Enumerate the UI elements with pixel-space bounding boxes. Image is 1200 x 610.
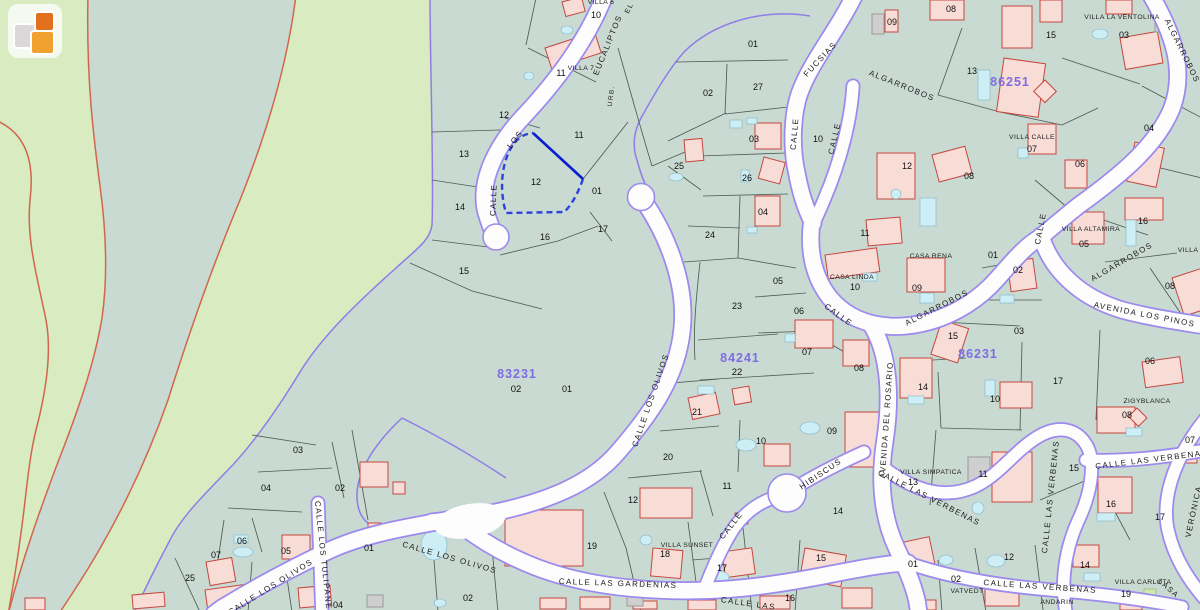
catastro-logo <box>8 4 62 58</box>
parcel-number: 11 <box>860 228 869 238</box>
house-name-label: ANDARIN <box>1040 599 1073 606</box>
parcel-number: 17 <box>717 563 727 573</box>
cul-de-sac-circle <box>628 184 655 211</box>
building <box>684 138 704 161</box>
parcel-number: 16 <box>540 232 550 242</box>
pool <box>561 26 573 34</box>
pool <box>1126 428 1142 436</box>
pool <box>987 555 1005 567</box>
parcel-number: 06 <box>1145 356 1155 366</box>
parcel-number: 12 <box>531 177 541 187</box>
parcel-number: 10 <box>591 10 601 20</box>
block-number: 84241 <box>720 351 760 365</box>
parcel-number: 13 <box>967 66 977 76</box>
parcel-number: 16 <box>785 593 795 603</box>
block-number: 83231 <box>497 367 537 381</box>
pool <box>920 293 934 303</box>
pool <box>939 555 953 565</box>
parcel-number: 18 <box>660 549 670 559</box>
parcel-number: 08 <box>964 171 974 181</box>
logo-orange-square <box>34 11 55 32</box>
map-canvas[interactable]: EUCALIPTOSLOSCALLEURB.ELCALLEFUCSIASCALL… <box>0 0 1200 610</box>
pool <box>640 535 652 545</box>
parcel-number: 15 <box>1069 463 1079 473</box>
parcel-number: 07 <box>1027 144 1037 154</box>
house-name-label: VILLA <box>1178 247 1199 254</box>
parcel-number: 09 <box>827 426 837 436</box>
parcel-number: 08 <box>854 363 864 373</box>
parcel-number: 17 <box>1053 376 1063 386</box>
map-viewport: EUCALIPTOSLOSCALLEURB.ELCALLEFUCSIASCALL… <box>0 0 1200 610</box>
parcel-number: 01 <box>988 250 998 260</box>
parcel-number: 15 <box>816 553 826 563</box>
parcel-number: 14 <box>455 202 465 212</box>
parcel-number: 08 <box>1122 410 1132 420</box>
parcel-number: 23 <box>732 301 742 311</box>
parcel-number: 27 <box>753 82 763 92</box>
pool <box>747 227 757 233</box>
parcel-number: 01 <box>562 384 572 394</box>
parcel-number: 05 <box>773 276 783 286</box>
building <box>1106 0 1132 14</box>
parcel-number: 08 <box>946 4 956 14</box>
pool <box>698 386 714 394</box>
parcel-number: 13 <box>459 149 469 159</box>
pool <box>1084 573 1100 581</box>
building <box>1000 382 1032 408</box>
parcel-number: 04 <box>261 483 271 493</box>
pool <box>1126 220 1136 246</box>
house-name-label: VATVEDT <box>950 588 983 595</box>
building <box>393 482 405 494</box>
parcel-number: 13 <box>908 477 918 487</box>
parcel-number: 10 <box>990 394 1000 404</box>
parcel-number: 02 <box>1013 265 1023 275</box>
parcel-number: 21 <box>692 407 702 417</box>
parcel-number: 09 <box>887 17 897 27</box>
parcel-number: 10 <box>850 282 860 292</box>
cul-de-sac-circle <box>768 474 806 512</box>
cul-de-sac-circle <box>483 224 509 250</box>
gray-building <box>367 595 383 607</box>
gray-building <box>872 14 884 34</box>
pool <box>920 198 936 226</box>
logo-amber-square <box>30 30 55 55</box>
building <box>900 358 932 398</box>
parcel-number: 07 <box>211 550 221 560</box>
parcel-number: 03 <box>293 445 303 455</box>
parcel-number: 06 <box>794 306 804 316</box>
building <box>580 597 610 609</box>
parcel-number: 25 <box>185 573 195 583</box>
pool <box>1097 513 1115 521</box>
parcel-number: 19 <box>1121 589 1131 599</box>
pool <box>800 422 820 434</box>
building <box>206 557 236 585</box>
parcel-number: 11 <box>556 68 565 78</box>
parcel-number: 19 <box>587 541 597 551</box>
building <box>688 600 716 610</box>
pool <box>233 547 253 557</box>
parcel-number: 14 <box>918 382 928 392</box>
building <box>732 386 752 405</box>
parcel-number: 15 <box>948 331 958 341</box>
building <box>764 444 790 466</box>
house-name-label: VILLA SUNSET <box>661 542 713 549</box>
house-name-label: VILLA SIMPATICA <box>900 469 962 476</box>
parcel-number: 02 <box>951 574 961 584</box>
building <box>1040 0 1062 22</box>
parcel-number: 11 <box>722 481 731 491</box>
parcel-number: 05 <box>1079 239 1089 249</box>
parcel-number: 04 <box>758 207 768 217</box>
pool <box>736 439 756 451</box>
parcel-number: 01 <box>748 39 758 49</box>
block-parcel-number: 02 <box>511 384 522 395</box>
parcel-number: 03 <box>1119 30 1129 40</box>
parcel-number: 16 <box>1138 216 1148 226</box>
parcel-number: 12 <box>902 161 912 171</box>
parcel-number: 03 <box>749 134 759 144</box>
house-name-label: VILLA 6 <box>588 0 615 6</box>
parcel-number: 09 <box>912 283 922 293</box>
parcel-number: 14 <box>833 506 843 516</box>
parcel-number: 17 <box>1155 512 1165 522</box>
parcel-number: 10 <box>756 436 766 446</box>
parcel-number: 01 <box>908 559 918 569</box>
street-label: CALLE <box>488 184 498 217</box>
parcel-number: 04 <box>1144 123 1154 133</box>
building <box>132 592 165 609</box>
parcel-number: 01 <box>592 186 602 196</box>
pool <box>1092 29 1108 39</box>
pool <box>1000 295 1014 303</box>
house-name-label: VILLA LA VENTOLINA <box>1084 14 1160 21</box>
house-name-label: VILLA CALLE <box>1009 134 1055 141</box>
parcel-number: 10 <box>813 134 823 144</box>
house-name-label: VILLA CARLOTA <box>1115 579 1172 586</box>
pool <box>978 70 990 100</box>
building <box>842 588 872 608</box>
house-name-label: CASA LINDA <box>830 274 874 281</box>
parcel-number: 05 <box>281 546 291 556</box>
pool <box>524 72 534 80</box>
pool <box>785 334 795 342</box>
parcel-number: 02 <box>335 483 345 493</box>
parcel-number: 24 <box>705 230 715 240</box>
parcel-number: 12 <box>628 495 638 505</box>
parcel-number: 06 <box>1075 159 1085 169</box>
parcel-number: 11 <box>574 130 583 140</box>
parcel-number: 26 <box>742 173 752 183</box>
building <box>540 598 566 609</box>
parcel-number: 15 <box>1046 30 1056 40</box>
pool <box>972 502 984 514</box>
parcel-number: 20 <box>663 452 673 462</box>
block-number: 86231 <box>958 347 998 361</box>
parcel-number: 12 <box>1004 552 1014 562</box>
pool <box>891 189 901 199</box>
building <box>1002 6 1032 48</box>
parcel-number: 17 <box>598 224 608 234</box>
parcel-number: 14 <box>1080 560 1090 570</box>
block-parcel-number: 22 <box>732 367 743 378</box>
parcel-number: 02 <box>463 593 473 603</box>
parcel-number: 02 <box>703 88 713 98</box>
building <box>866 217 902 246</box>
house-name-label: VILLA ALTAMIRA <box>1062 226 1120 233</box>
house-name-label: CASA RENA <box>910 253 953 260</box>
parcel-number: 01 <box>364 543 374 553</box>
parcel-number: 12 <box>499 110 509 120</box>
parcel-number: 03 <box>1014 326 1024 336</box>
pool <box>434 599 446 607</box>
building <box>795 320 833 348</box>
pool <box>669 173 683 181</box>
building <box>360 462 388 487</box>
house-name-label: VILLA 7 <box>568 65 595 72</box>
pool <box>908 396 924 404</box>
parcel-number: 11 <box>978 469 987 479</box>
house-name-label: ZIGYBLANCA <box>1123 398 1170 405</box>
parcel-number: 04 <box>333 600 343 610</box>
parcel-number: 25 <box>674 161 684 171</box>
pool <box>747 118 757 124</box>
block-number: 86251 <box>990 75 1030 89</box>
building <box>25 598 45 610</box>
pool <box>730 120 742 128</box>
parcel-number: 08 <box>1165 281 1175 291</box>
parcel-number: 07 <box>802 347 812 357</box>
parcel-number: 15 <box>459 266 469 276</box>
parcel-number: 06 <box>237 536 247 546</box>
parcel-number: 07 <box>1185 435 1195 445</box>
parcel-number: 16 <box>1106 499 1116 509</box>
building <box>640 488 692 518</box>
